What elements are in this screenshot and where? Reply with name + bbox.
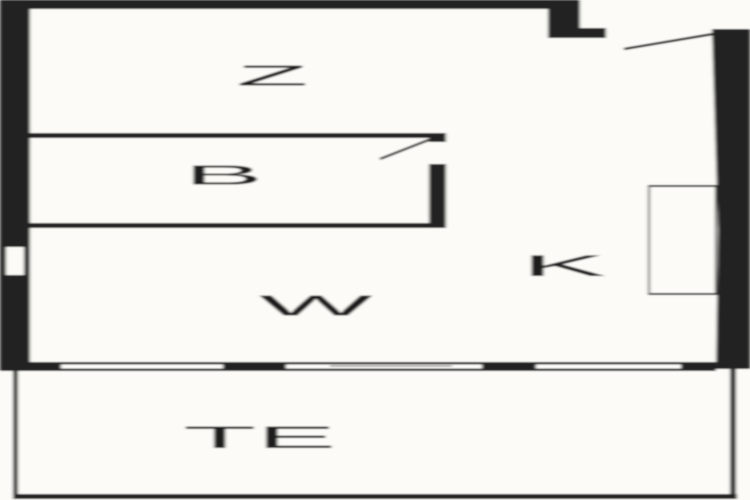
svg-text:K: K [521, 249, 606, 283]
svg-text:TE: TE [183, 420, 336, 455]
svg-text:Z: Z [236, 60, 309, 92]
svg-text:B: B [184, 160, 264, 191]
svg-text:W: W [259, 289, 373, 321]
